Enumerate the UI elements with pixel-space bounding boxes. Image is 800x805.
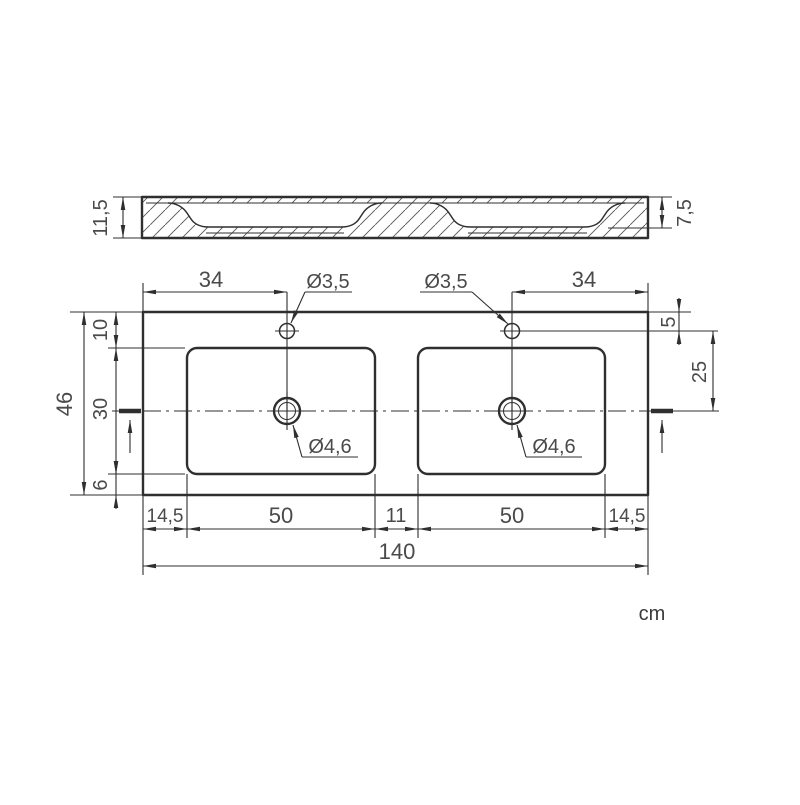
dim-faucet-right-offset: 34: [512, 267, 648, 312]
dim-faucet-to-center: 25: [676, 331, 719, 411]
leader-faucet-right-dia: Ø3,5: [420, 271, 508, 324]
dim-basin-height-label: 30: [90, 398, 112, 420]
dim-faucet-from-top-label: 5: [658, 316, 680, 327]
leader-drain-right-dia-label: Ø4,6: [532, 436, 575, 458]
leader-faucet-left-dia: Ø3,5: [291, 271, 352, 323]
dim-basin-gap-label: 11: [386, 505, 407, 527]
drawing-canvas: 11,5 7,5: [0, 0, 800, 800]
drain-hole-right: [493, 392, 531, 430]
dim-basin-right-width-label: 50: [500, 503, 524, 528]
leader-faucet-left-dia-label: Ø3,5: [306, 271, 349, 293]
section-basin-left-cavity: [168, 203, 382, 227]
leader-drain-right-dia: Ø4,6: [517, 425, 582, 458]
dim-section-depth-label: 7,5: [674, 199, 696, 227]
section-view: 11,5 7,5: [90, 197, 696, 238]
dim-section-height: 11,5: [90, 197, 142, 238]
dim-faucet-right-offset-label: 34: [572, 267, 596, 292]
dim-faucet-left-offset-label: 34: [199, 267, 223, 292]
dim-faucet-from-top: 5: [648, 298, 691, 345]
technical-drawing: 11,5 7,5: [0, 0, 800, 800]
dim-faucet-left-offset: 34: [143, 267, 287, 312]
dim-overall-width-label: 140: [379, 539, 416, 564]
dim-basin-to-bottom: 6: [90, 460, 116, 509]
section-basin-right-cavity: [430, 203, 625, 227]
dim-edge-to-basin-left-label: 14,5: [147, 506, 184, 527]
dim-top-to-basin-label: 10: [90, 319, 112, 341]
leader-faucet-right-dia-label: Ø3,5: [424, 271, 467, 293]
leader-drain-left-dia: Ø4,6: [293, 425, 358, 458]
drain-hole-left: [268, 392, 306, 430]
dim-section-height-label: 11,5: [90, 199, 112, 236]
plan-outline: [143, 312, 648, 495]
dim-basin-left-width-label: 50: [269, 503, 293, 528]
plan-view: 34 Ø3,5 Ø3,5 34 5 25: [52, 267, 719, 575]
dim-top-to-basin: 10: [90, 312, 185, 474]
dim-overall-width: 140: [143, 539, 648, 566]
leader-drain-left-dia-label: Ø4,6: [308, 436, 351, 458]
dim-faucet-to-center-label: 25: [689, 361, 711, 383]
units-label: cm: [639, 603, 666, 625]
dim-overall-height-label: 46: [52, 392, 77, 416]
dim-edge-to-basin-right-label: 14,5: [609, 506, 646, 527]
dim-basin-to-bottom-label: 6: [90, 479, 112, 490]
